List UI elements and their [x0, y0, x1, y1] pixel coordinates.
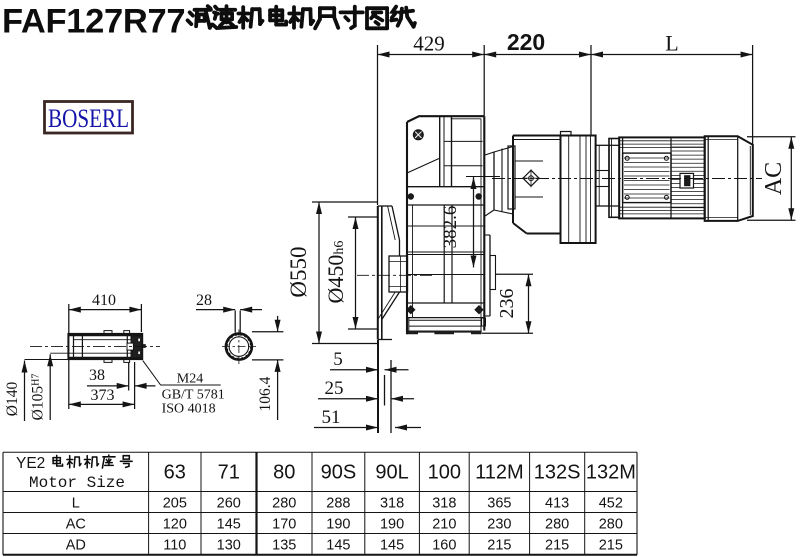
svg-text:132M: 132M	[586, 462, 636, 484]
svg-text:280: 280	[599, 517, 623, 533]
svg-text:M24: M24	[177, 372, 203, 387]
svg-text:145: 145	[217, 517, 241, 533]
svg-text:215: 215	[599, 538, 623, 554]
svg-text:90L: 90L	[375, 462, 408, 484]
svg-text:215: 215	[487, 538, 511, 554]
svg-text:Ø140: Ø140	[4, 382, 21, 417]
svg-text:Motor Size: Motor Size	[29, 474, 125, 492]
svg-text:190: 190	[326, 517, 350, 533]
svg-text:215: 215	[545, 538, 569, 554]
svg-text:170: 170	[272, 517, 296, 533]
svg-text:280: 280	[545, 517, 569, 533]
svg-text:318: 318	[380, 496, 404, 512]
svg-text:80: 80	[273, 462, 295, 484]
svg-text:190: 190	[380, 517, 404, 533]
svg-text:71: 71	[218, 462, 240, 484]
svg-text:145: 145	[380, 538, 404, 554]
svg-text:429: 429	[413, 32, 445, 56]
svg-text:GB/T 5781: GB/T 5781	[162, 388, 225, 403]
svg-text:452: 452	[599, 496, 623, 512]
svg-text:205: 205	[163, 496, 187, 512]
svg-text:FAF127R77: FAF127R77	[2, 3, 185, 41]
svg-text:160: 160	[432, 538, 456, 554]
svg-text:260: 260	[217, 496, 241, 512]
svg-text:AC: AC	[66, 517, 86, 533]
svg-text:365: 365	[487, 496, 511, 512]
svg-text:100: 100	[428, 462, 461, 484]
svg-text:135: 135	[272, 538, 296, 554]
svg-text:28: 28	[196, 292, 212, 309]
svg-text:Ø550: Ø550	[286, 246, 311, 297]
svg-text:51: 51	[322, 407, 341, 428]
svg-text:AC: AC	[761, 162, 787, 195]
svg-text:382.6: 382.6	[440, 206, 461, 249]
svg-text:AD: AD	[66, 538, 86, 554]
svg-text:130: 130	[217, 538, 241, 554]
svg-text:90S: 90S	[321, 462, 357, 484]
svg-text:210: 210	[432, 517, 456, 533]
svg-text:38: 38	[89, 367, 105, 384]
svg-text:280: 280	[272, 496, 296, 512]
svg-text:145: 145	[326, 538, 350, 554]
svg-text:410: 410	[92, 292, 116, 309]
svg-text:220: 220	[507, 29, 545, 55]
svg-text:L: L	[665, 31, 678, 56]
svg-text:Ø105H7: Ø105H7	[30, 374, 47, 421]
svg-text:YE2: YE2	[16, 455, 45, 472]
svg-text:318: 318	[432, 496, 456, 512]
svg-text:120: 120	[163, 517, 187, 533]
svg-text:BOSERL: BOSERL	[48, 104, 129, 133]
svg-text:L: L	[72, 496, 80, 512]
svg-text:25: 25	[325, 378, 344, 399]
svg-text:5: 5	[333, 349, 343, 370]
svg-text:110: 110	[163, 538, 186, 554]
svg-text:106.4: 106.4	[257, 376, 274, 411]
svg-text:230: 230	[487, 517, 511, 533]
svg-text:373: 373	[91, 387, 115, 404]
svg-text:413: 413	[545, 496, 569, 512]
svg-text:288: 288	[326, 496, 350, 512]
svg-text:132S: 132S	[534, 462, 581, 484]
svg-text:63: 63	[164, 462, 186, 484]
svg-text:ISO 4018: ISO 4018	[162, 402, 216, 417]
svg-text:112M: 112M	[475, 462, 524, 484]
svg-text:Ø450h6: Ø450h6	[323, 241, 348, 304]
svg-text:236: 236	[496, 289, 518, 319]
